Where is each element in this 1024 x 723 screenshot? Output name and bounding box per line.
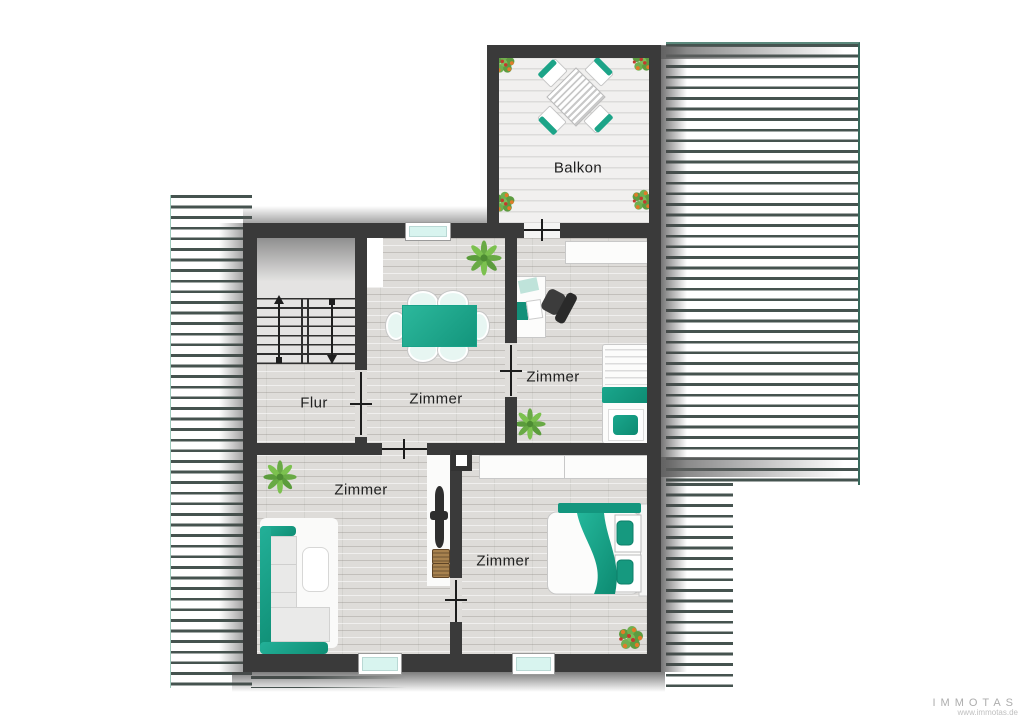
double-bed: [547, 502, 649, 598]
outer-wall-right: [647, 223, 661, 672]
roof-hatch-right-lower: [666, 483, 733, 688]
outer-wall-left: [243, 223, 257, 672]
office-shelf: [565, 241, 651, 264]
stairs-treads: [257, 298, 355, 364]
flower-pot-icon: [616, 624, 646, 654]
door-icon: [350, 403, 372, 405]
stairs-up-arrow-base: [276, 357, 282, 363]
outer-wall-bottom: [243, 654, 661, 672]
bed-blanket-fold: [602, 387, 649, 403]
balcony-wall-right: [649, 45, 661, 223]
window-glass: [516, 657, 551, 671]
wardrobe: [479, 455, 649, 479]
outer-wall-top: [243, 223, 661, 238]
stairs-down-arrowhead-icon: [327, 355, 337, 364]
window-glass: [362, 657, 398, 671]
roof-hatch-left: [170, 195, 252, 688]
room-label-zimmer-bedroom: Zimmer: [476, 553, 529, 570]
balcony-wall-left: [487, 45, 499, 223]
wall-shadow-top: [243, 206, 487, 223]
door-icon: [500, 370, 522, 372]
bed-foot-cushion: [613, 415, 638, 435]
single-bed: [602, 344, 651, 444]
palm-plant-icon: [514, 408, 546, 440]
door-icon: [403, 439, 405, 459]
room-label-zimmer-living: Zimmer: [334, 482, 387, 499]
palm-plant-icon: [263, 460, 297, 494]
immotas-logo: IMMOTAS www.immotas.de: [932, 697, 1018, 717]
door-icon: [445, 599, 467, 601]
coffee-table: [302, 547, 329, 592]
roof-hatch-right: [666, 42, 860, 485]
bed-sheet-stripes: [605, 349, 648, 385]
stairs-landing: [257, 238, 355, 300]
palm-plant-icon: [466, 240, 502, 276]
balcony-wall-top: [487, 45, 661, 58]
stairs-up-arrow-icon: [278, 303, 280, 361]
room-label-zimmer-office: Zimmer: [526, 369, 579, 386]
chimney-icon: [451, 450, 472, 471]
interior-wall: [450, 455, 462, 654]
room-label-balkon: Balkon: [554, 160, 602, 177]
sofa-back: [260, 642, 328, 654]
sofa-back: [260, 526, 271, 654]
wardrobe-divider: [564, 456, 565, 478]
basket: [432, 549, 450, 564]
stairs-up-arrowhead-icon: [274, 295, 284, 304]
window: [358, 653, 402, 675]
balcony-door-icon: [541, 219, 543, 241]
room-label-flur: Flur: [300, 395, 327, 412]
dining-table: [402, 305, 477, 347]
stairs-rail: [301, 298, 303, 364]
room-label-zimmer-dining: Zimmer: [409, 391, 462, 408]
stairs-down-arrow-base: [329, 299, 335, 305]
sofa-corner-seat: [270, 607, 330, 642]
window: [405, 222, 451, 241]
window: [512, 653, 555, 675]
floor-plan-canvas: Balkon Flur Zimmer Zimmer Zimmer Zimmer …: [0, 0, 1024, 723]
logo-website: www.immotas.de: [932, 708, 1018, 717]
door-icon: [455, 580, 457, 622]
stairs-rail: [307, 298, 309, 364]
ironing-board: [435, 486, 444, 548]
stairs-down-arrow-icon: [331, 302, 333, 358]
basket: [432, 563, 450, 578]
window-glass: [409, 226, 447, 237]
interior-wall: [505, 238, 517, 443]
